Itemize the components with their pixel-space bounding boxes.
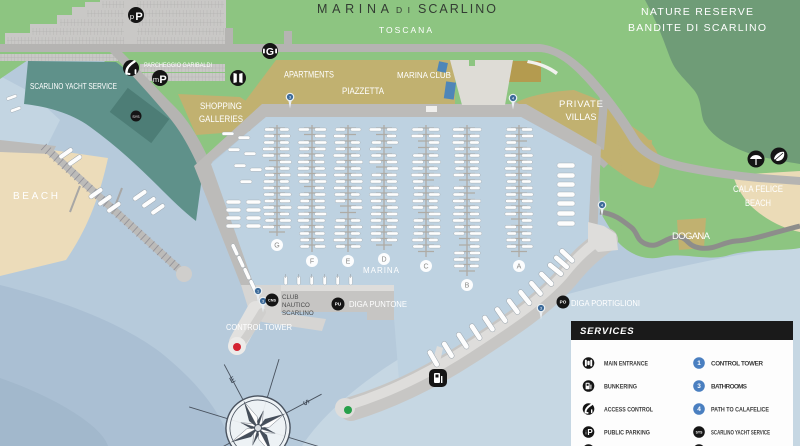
svg-text:GALLERIES: GALLERIES — [199, 114, 243, 125]
svg-text:CONTROL TOWER: CONTROL TOWER — [711, 360, 763, 367]
svg-text:PIAZZETTA: PIAZZETTA — [342, 86, 385, 97]
svg-text:DIGA PORTIGLIONI: DIGA PORTIGLIONI — [571, 298, 640, 308]
svg-text:DOGANA: DOGANA — [672, 231, 711, 242]
svg-text:G: G — [266, 46, 274, 58]
svg-text:m: m — [153, 75, 159, 84]
svg-text:SCARLINO YACHT SERVICE: SCARLINO YACHT SERVICE — [711, 429, 770, 436]
svg-text:G: G — [274, 243, 279, 250]
svg-text:A: A — [517, 264, 522, 271]
svg-text:3: 3 — [697, 383, 701, 390]
svg-text:MAIN ENTRANCE: MAIN ENTRANCE — [604, 360, 648, 367]
svg-text:DIGA PUNTONE: DIGA PUNTONE — [349, 299, 407, 309]
svg-text:P: P — [135, 11, 142, 23]
svg-text:4: 4 — [697, 406, 701, 413]
svg-text:P: P — [587, 428, 593, 437]
svg-text:D: D — [381, 257, 386, 264]
svg-text:E: E — [346, 259, 351, 266]
svg-text:1: 1 — [697, 360, 701, 367]
svg-text:NAUTICO: NAUTICO — [282, 302, 310, 309]
svg-text:3: 3 — [289, 95, 291, 99]
svg-text:3: 3 — [262, 299, 264, 303]
svg-text:CNS: CNS — [268, 298, 276, 302]
svg-text:4: 4 — [601, 203, 603, 207]
svg-text:ACCESS CONTROL: ACCESS CONTROL — [604, 406, 653, 413]
svg-text:BEACH: BEACH — [745, 198, 771, 208]
svg-text:BANDITE DI SCARLINO: BANDITE DI SCARLINO — [628, 22, 766, 34]
svg-text:PUBLIC PARKING: PUBLIC PARKING — [604, 429, 650, 436]
svg-text:CONTROL TOWER: CONTROL TOWER — [226, 322, 292, 332]
svg-text:MARINA CLUB: MARINA CLUB — [397, 71, 451, 80]
svg-text:P: P — [159, 74, 166, 86]
svg-text:BATHROOMS: BATHROOMS — [711, 383, 747, 390]
svg-text:PO: PO — [560, 300, 567, 305]
svg-text:MARINA: MARINA — [363, 266, 400, 275]
svg-text:VILLAS: VILLAS — [566, 112, 597, 123]
svg-text:SCARLINO YACHT SERVICE: SCARLINO YACHT SERVICE — [30, 81, 117, 91]
svg-text:SYS: SYS — [696, 430, 704, 434]
svg-text:1: 1 — [257, 289, 259, 293]
svg-text:PATH TO CALAFELICE: PATH TO CALAFELICE — [711, 406, 769, 413]
svg-text:CALA FELICE: CALA FELICE — [733, 184, 783, 194]
svg-text:F: F — [310, 259, 314, 266]
svg-text:C: C — [423, 264, 428, 271]
svg-text:CLUB: CLUB — [282, 294, 299, 301]
svg-text:B: B — [465, 283, 470, 290]
svg-text:SCARLINO: SCARLINO — [282, 310, 314, 317]
svg-text:3: 3 — [540, 306, 542, 310]
svg-text:PU: PU — [335, 302, 342, 307]
svg-text:4: 4 — [512, 96, 514, 100]
svg-text:SHOPPING: SHOPPING — [200, 101, 242, 112]
svg-text:PARCHEGGIO GARIBALDI: PARCHEGGIO GARIBALDI — [144, 62, 212, 69]
svg-text:NATURE RESERVE: NATURE RESERVE — [641, 6, 753, 18]
svg-text:APARTMENTS: APARTMENTS — [284, 70, 334, 81]
svg-text:PRIVATE: PRIVATE — [559, 99, 603, 110]
svg-text:p: p — [130, 12, 134, 21]
svg-text:BUNKERING: BUNKERING — [604, 383, 637, 390]
svg-text:SYS: SYS — [132, 115, 140, 119]
svg-text:SERVICES: SERVICES — [580, 326, 634, 337]
